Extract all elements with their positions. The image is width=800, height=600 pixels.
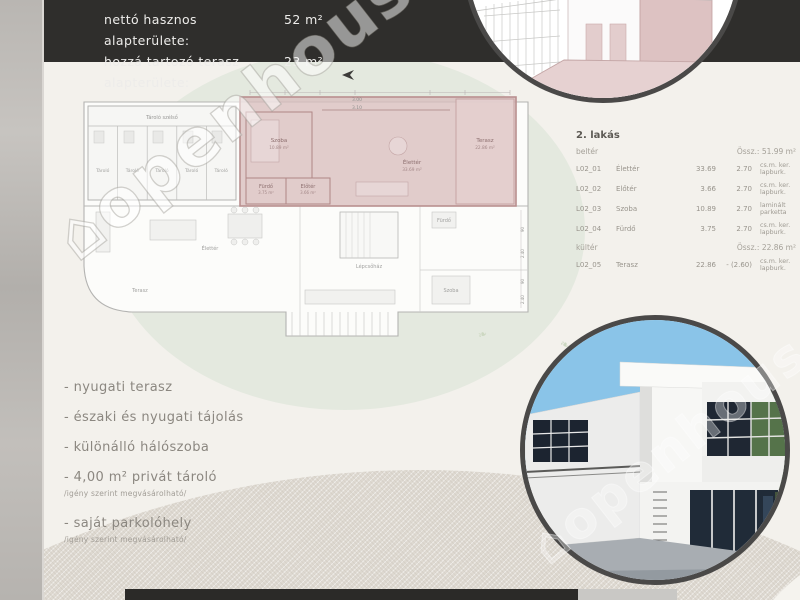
room-finish: cs.m. ker. lapburk.: [756, 258, 796, 272]
finish-line: cs.m. ker.: [760, 222, 790, 229]
room-height: - (2.60): [720, 261, 756, 269]
stat-label: hozzá tartozó terasz alapterülete:: [104, 51, 284, 93]
footer-dark-bar: [125, 589, 578, 600]
feature-item: - északi és nyugati tájolás: [64, 410, 324, 425]
feature-note: /igény szerint megvásárolható/: [64, 532, 324, 547]
room-finish: cs.m. ker. lapburk.: [756, 182, 796, 196]
finish-line: cs.m. ker.: [760, 182, 790, 189]
room-area: 3.75: [678, 225, 720, 233]
feature-list: - nyugati terasz - északi és nyugati táj…: [64, 380, 324, 562]
room-height: 2.70: [720, 225, 756, 233]
house-render-circle: [520, 315, 790, 585]
room-height: 2.70: [720, 205, 756, 213]
finish-line: lapburk.: [760, 189, 786, 196]
room-name: Előtér: [616, 185, 678, 193]
feature-item: - nyugati terasz: [64, 380, 324, 395]
room-area: 10.89: [678, 205, 720, 213]
feature-note: /igény szerint megvásárolható/: [64, 486, 324, 501]
finish-line: cs.m. ker.: [760, 258, 790, 265]
room-name: Fürdő: [616, 225, 678, 233]
table-row: L02_02 Előtér 3.66 2.70 cs.m. ker. lapbu…: [576, 179, 796, 199]
room-name: Élettér: [616, 165, 678, 173]
unit-room-table: 2. lakás beltér Össz.: 51.99 m² L02_01 É…: [576, 130, 796, 275]
room-area: 3.66: [678, 185, 720, 193]
section-label: kültér: [576, 243, 598, 252]
feature-item: - különálló hálószoba: [64, 440, 324, 455]
finish-line: lapburk.: [760, 265, 786, 272]
table-section-kulter: kültér Össz.: 22.86 m²: [576, 243, 796, 252]
section-total: Össz.: 22.86 m²: [737, 243, 796, 252]
stat-value: 23 m²: [284, 51, 374, 93]
room-id: L02_01: [576, 165, 616, 173]
table-row: L02_04 Fürdő 3.75 2.70 cs.m. ker. lapbur…: [576, 219, 796, 239]
room-id: L02_04: [576, 225, 616, 233]
feature-item: - 4,00 m² privát tároló /igény szerint m…: [64, 470, 324, 501]
finish-line: lapburk.: [760, 229, 786, 236]
room-name: Terasz: [616, 261, 678, 269]
room-height: 2.70: [720, 165, 756, 173]
sage-circle-background: [105, 50, 585, 410]
feature-text: - északi és nyugati tájolás: [64, 410, 244, 425]
unit-title: 2. lakás: [576, 130, 796, 141]
feature-text: - nyugati terasz: [64, 380, 172, 395]
room-finish: cs.m. ker. lapburk.: [756, 222, 796, 236]
finish-line: parketta: [760, 209, 787, 216]
room-finish: laminált parketta: [756, 202, 796, 216]
concrete-texture-strip: [0, 0, 44, 600]
feature-text: - különálló hálószoba: [64, 440, 209, 455]
room-area: 33.69: [678, 165, 720, 173]
house-render: [525, 320, 790, 585]
stat-value: 52 m²: [284, 9, 374, 51]
finish-line: laminált: [760, 202, 786, 209]
section-total: Össz.: 51.99 m²: [737, 147, 796, 156]
room-id: L02_03: [576, 205, 616, 213]
section-label: beltér: [576, 147, 598, 156]
room-area: 22.86: [678, 261, 720, 269]
feature-text: - 4,00 m² privát tároló: [64, 470, 217, 485]
feature-item: - saját parkolóhely /igény szerint megvá…: [64, 516, 324, 547]
finish-line: lapburk.: [760, 169, 786, 176]
table-row: L02_01 Élettér 33.69 2.70 cs.m. ker. lap…: [576, 159, 796, 179]
table-row: L02_05 Terasz 22.86 - (2.60) cs.m. ker. …: [576, 255, 796, 275]
room-height: 2.70: [720, 185, 756, 193]
table-section-belter: beltér Össz.: 51.99 m²: [576, 147, 796, 156]
table-row: L02_03 Szoba 10.89 2.70 laminált parkett…: [576, 199, 796, 219]
footer-gray-bar: [578, 589, 677, 600]
finish-line: cs.m. ker.: [760, 162, 790, 169]
storage-cell-label: Tároló: [95, 167, 110, 174]
room-name: Szoba: [616, 205, 678, 213]
listing-poster: ❧ ❧ ❧ nettó hasznos alapterülete: 52 m² …: [0, 0, 800, 600]
room-finish: cs.m. ker. lapburk.: [756, 162, 796, 176]
feature-text: - saját parkolóhely: [64, 516, 192, 531]
stat-label: nettó hasznos alapterülete:: [104, 9, 284, 51]
room-id: L02_05: [576, 261, 616, 269]
room-id: L02_02: [576, 185, 616, 193]
